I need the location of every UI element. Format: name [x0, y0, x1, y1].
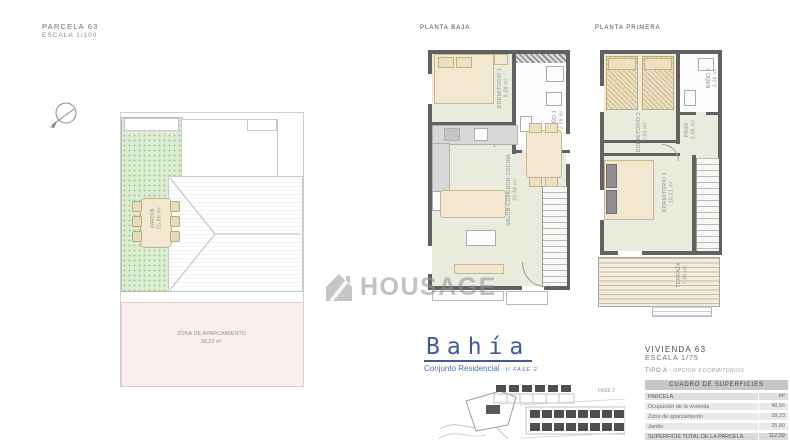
porch-step — [506, 291, 548, 305]
washer — [546, 66, 564, 82]
watermark-text: HOUSAGE — [360, 273, 497, 302]
garden-chair — [170, 201, 180, 212]
garden-chair — [170, 231, 180, 242]
garden-chair — [132, 216, 142, 227]
wall — [680, 112, 696, 115]
dormitorio3-label: DORMITORIO 3 9,28 m² — [497, 68, 510, 108]
brand-block: Bahía Conjunto ResidencialII FASE 2 — [424, 336, 594, 373]
chair — [529, 123, 542, 133]
kitchen-counter — [432, 143, 450, 193]
terrace — [598, 257, 720, 307]
plan-sheet: PARCELA 63 ESCALA 1/100 JARDÍN 25,80 m² … — [0, 0, 790, 440]
house-icon — [322, 270, 356, 304]
dormitorio2-label: DORMITORIO 2 8,01 m² — [636, 112, 649, 152]
vivienda-block: VIVIENDA 63 ESCALA 1/75 TIPO A - OPCIÓN … — [645, 345, 788, 374]
row-label: Zona de aparcamiento — [648, 414, 703, 420]
planta-baja-title: PLANTA BAJA — [420, 25, 470, 31]
paso-label: PASO 2,06 m² — [684, 120, 697, 139]
site-map-phase-label: FASE 2 — [598, 388, 615, 394]
roof-plan — [168, 176, 303, 292]
chair — [529, 177, 542, 187]
window — [600, 86, 604, 112]
nightstand — [494, 54, 508, 65]
garden-table: JARDÍN 25,80 m² — [140, 198, 172, 248]
watermark: HOUSAGE — [322, 270, 497, 304]
toilet — [684, 90, 696, 106]
total-value: 112,59 — [758, 433, 788, 440]
staircase — [542, 186, 567, 286]
surface-table-row: Zona de aparcamiento 38,23 — [645, 413, 788, 420]
vivienda-opcion: - OPCIÓN 3 DORMITORIOS — [669, 368, 744, 374]
parcela-header: PARCELA 63 ESCALA 1/100 — [42, 22, 98, 39]
parcela-title: PARCELA 63 — [42, 22, 98, 31]
surface-table-header-row: PARCELA m² — [645, 393, 788, 400]
kitchen-sink — [474, 128, 488, 141]
row-value: 38,23 — [758, 413, 788, 420]
window — [428, 74, 432, 104]
surface-table-total-row: SUPERFICIE TOTAL DE LA PARCELA 112,59 — [645, 433, 788, 440]
dining-table — [526, 130, 562, 178]
col-unit: m² — [758, 393, 788, 400]
garden-chair — [132, 201, 142, 212]
shower — [516, 54, 566, 63]
surface-table: CUADRO DE SUPERFICIES PARCELA m² Ocupaci… — [645, 380, 788, 440]
terrace-step — [652, 306, 712, 317]
roof-lines-icon — [169, 177, 302, 291]
pillow — [456, 57, 472, 68]
site-location-map: FASE 2 — [438, 383, 625, 440]
house-footprint-notch — [247, 119, 277, 131]
window — [566, 134, 570, 164]
col-label: PARCELA — [648, 394, 673, 400]
brand-phase: II FASE 2 — [506, 367, 538, 373]
garden-planter — [124, 118, 179, 131]
entrance-door-arc — [522, 262, 545, 287]
pillow — [606, 190, 617, 214]
wall — [512, 150, 522, 153]
row-label: Jardín — [648, 424, 663, 430]
planta-primera-plan: DORMITORIO 2 8,01 m² BAÑO 2 3,06 m² PASO… — [600, 50, 722, 255]
bath2-label: BAÑO 2 3,06 m² — [706, 68, 719, 88]
cooktop — [444, 128, 460, 141]
terrace-door-opening — [618, 251, 642, 255]
parking-label: ZONA DE APARCAMIENTO 38,23 m² — [121, 330, 302, 347]
door-arc — [662, 144, 679, 161]
compass-icon — [48, 100, 80, 132]
brand-name: Bahía — [424, 336, 532, 362]
coffee-table — [466, 230, 496, 246]
terraza-label: TERRAZA 7,95 m² — [676, 262, 689, 287]
staircase — [696, 158, 719, 251]
pillow — [606, 164, 617, 188]
vivienda-title: VIVIENDA 63 — [645, 345, 788, 354]
garden-label: JARDÍN 25,80 m² — [150, 207, 163, 229]
row-label: Ocupación de la vivienda — [648, 404, 709, 410]
dormitorio1-label: DORMITORIO 1 10,21 m² — [662, 172, 675, 212]
planta-primera-title: PLANTA PRIMERA — [595, 25, 661, 31]
chair — [545, 123, 558, 133]
wall — [706, 112, 722, 115]
vivienda-tipo: TIPO A - OPCIÓN 3 DORMITORIOS — [645, 368, 788, 374]
brand-subtitle: Conjunto ResidencialII FASE 2 — [424, 364, 594, 373]
garden-chair — [170, 216, 180, 227]
planta-baja-plan: BAÑO 1 3,06 m² DORMITORIO 3 9,28 m² SALÓ… — [428, 50, 570, 290]
parcela-scale: ESCALA 1/100 — [42, 32, 98, 39]
sink — [546, 92, 562, 106]
pillow — [608, 58, 636, 70]
row-value: 48,56 — [758, 403, 788, 410]
total-label: SUPERFICIE TOTAL DE LA PARCELA — [648, 434, 743, 440]
pillow — [644, 58, 672, 70]
sofa — [440, 190, 506, 218]
garden-chair — [132, 231, 142, 242]
surface-table-title: CUADRO DE SUPERFICIES — [645, 380, 788, 390]
vivienda-scale: ESCALA 1/75 — [645, 355, 788, 362]
row-value: 25,80 — [758, 423, 788, 430]
surface-table-row: Ocupación de la vivienda 48,56 — [645, 403, 788, 410]
pillow — [438, 57, 454, 68]
surface-table-row: Jardín 25,80 — [645, 423, 788, 430]
salon-label: SALÓN-COMEDOR-COCINA 20,46 m² — [506, 154, 519, 226]
